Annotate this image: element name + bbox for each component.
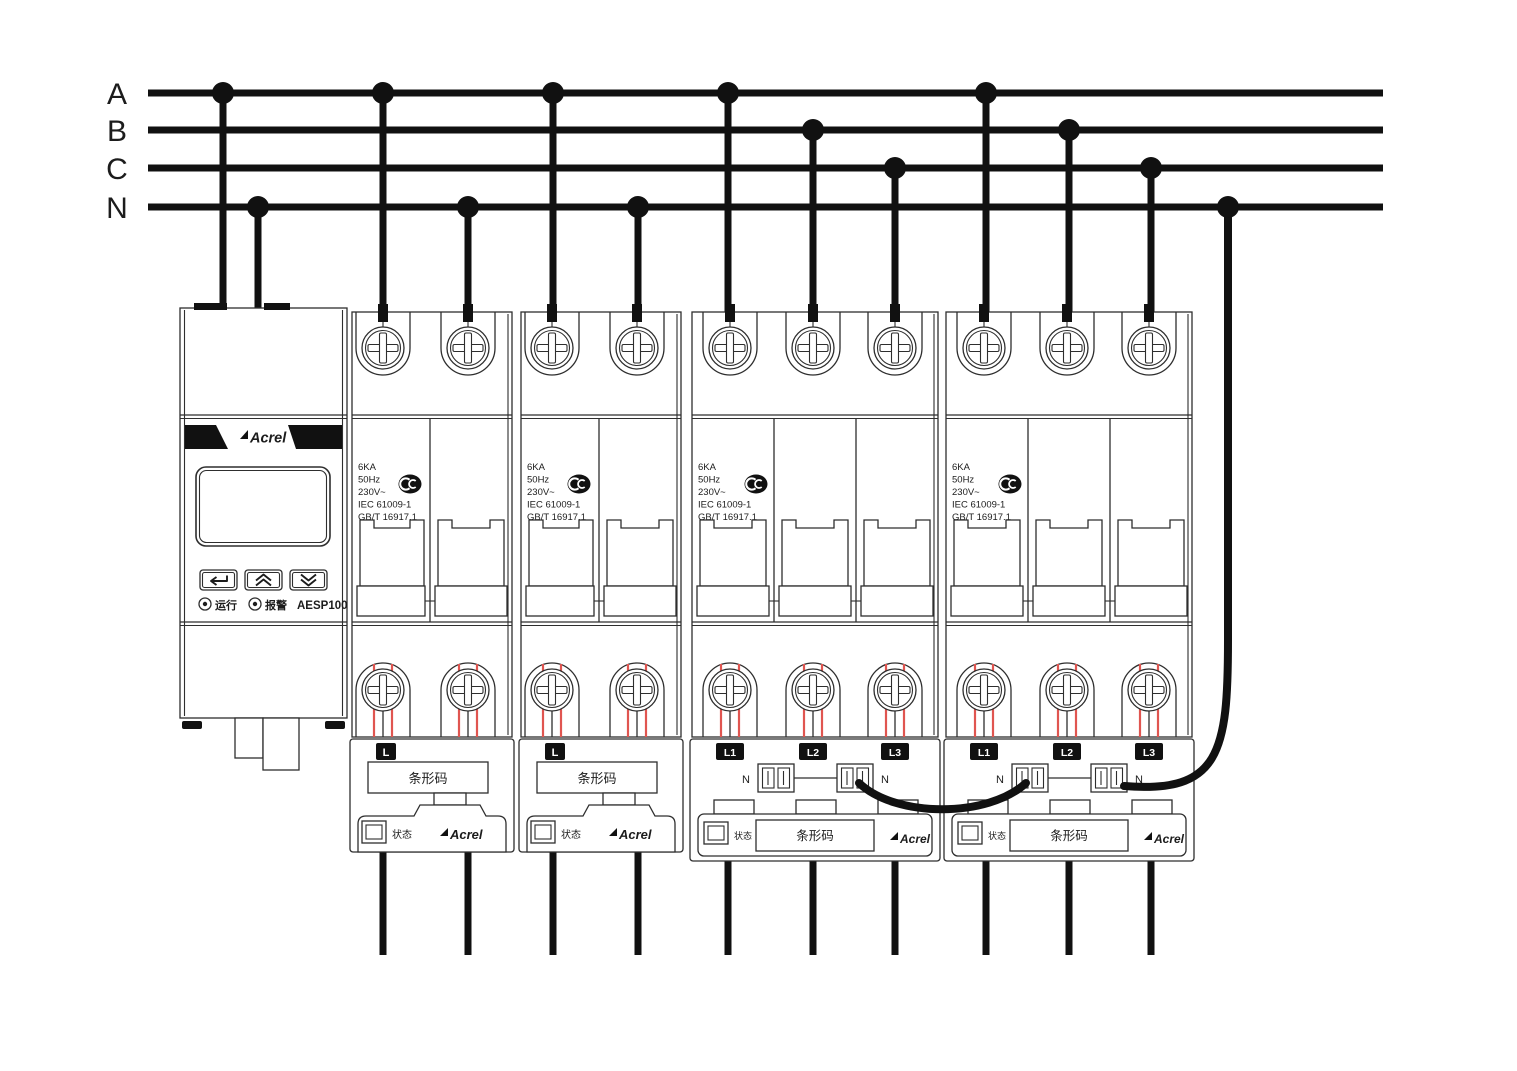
- mount-foot: [325, 721, 345, 729]
- junction-dot: [802, 119, 824, 141]
- terminal-stub: [264, 303, 290, 310]
- mount-foot: [182, 721, 202, 729]
- junction-dot: [247, 196, 269, 218]
- junction-dot: [975, 82, 997, 104]
- junction-dot: [627, 196, 649, 218]
- junction-dot: [717, 82, 739, 104]
- wiring-diagram-page: 6KA 50Hz 230V~ IEC 61009-1 GB/T 16917.1: [0, 0, 1517, 1071]
- junction-dot: [372, 82, 394, 104]
- junction-dot: [1140, 157, 1162, 179]
- aesp100-controller: Acrel 运行: [180, 303, 348, 770]
- junction-dot: [1217, 196, 1239, 218]
- alarm-led-label: 报警: [265, 598, 287, 612]
- bus-label-n: N: [106, 192, 128, 225]
- junction-dot: [1058, 119, 1080, 141]
- breaker-3: [690, 304, 940, 861]
- alarm-led-dot: [253, 602, 257, 606]
- run-led-label: 运行: [215, 598, 237, 612]
- devices: Acrel 运行: [180, 303, 1194, 861]
- breaker-2: [519, 304, 683, 852]
- junction-dot: [457, 196, 479, 218]
- acrel-logo-text: Acrel: [249, 431, 287, 447]
- junction-dot: [212, 82, 234, 104]
- controller-buttons: [200, 570, 327, 590]
- bus-label-a: A: [107, 78, 127, 111]
- model-label: AESP100: [297, 600, 348, 612]
- banner-right-block: [288, 425, 342, 449]
- run-led-dot: [203, 602, 207, 606]
- breaker-1: [350, 304, 514, 852]
- led-row: 运行 报警 AESP100: [199, 598, 348, 612]
- junction-dot: [884, 157, 906, 179]
- bus-label-b: B: [107, 115, 127, 148]
- terminal-stub: [194, 303, 227, 310]
- junction-dot: [542, 82, 564, 104]
- bus-bars: A B C N: [106, 78, 1383, 225]
- din-clip: [235, 718, 263, 758]
- din-clip-slider: [263, 718, 299, 770]
- bus-label-c: C: [106, 153, 128, 186]
- acrel-aesp100-wiring-diagram: 6KA 50Hz 230V~ IEC 61009-1 GB/T 16917.1: [0, 0, 1517, 1071]
- breaker-4: [944, 304, 1194, 861]
- lcd-display: [196, 467, 330, 546]
